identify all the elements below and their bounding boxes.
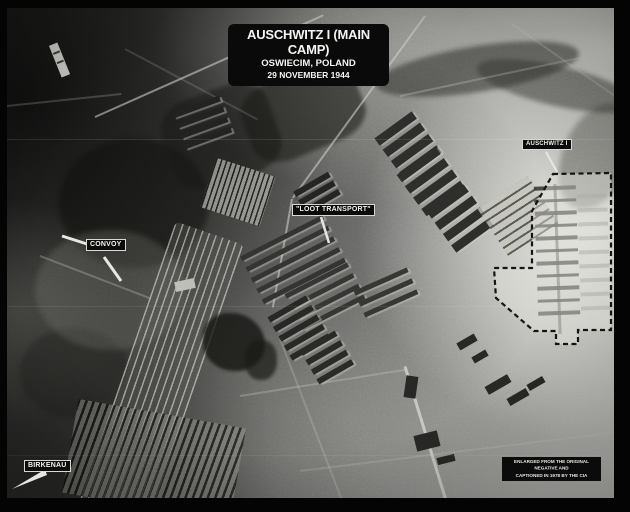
convoy-leader-line xyxy=(62,236,87,244)
auschwitz-leader-line xyxy=(546,152,557,172)
loot-transport-label: "LOOT TRANSPORT" xyxy=(292,204,375,216)
title-line3: 29 NOVEMBER 1944 xyxy=(230,70,387,81)
camp-dashed-boundary xyxy=(494,173,611,344)
cia-caption-box: ENLARGED FROM THE ORIGINAL NEGATIVE AND … xyxy=(502,457,601,481)
convoy-label: CONVOY xyxy=(86,239,126,251)
caption-line1: ENLARGED FROM THE ORIGINAL NEGATIVE AND xyxy=(507,460,596,472)
auschwitz-i-label: AUSCHWITZ I xyxy=(522,139,572,150)
photo-frame: AUSCHWITZ I (MAIN CAMP) OSWIECIM, POLAND… xyxy=(0,0,630,512)
title-line2: OSWIECIM, POLAND xyxy=(230,58,387,70)
convoy-leader-line xyxy=(104,257,121,281)
birkenau-arrow xyxy=(12,470,47,490)
title-box: AUSCHWITZ I (MAIN CAMP) OSWIECIM, POLAND… xyxy=(228,24,389,86)
loot-transport-leader-line xyxy=(321,217,329,243)
aerial-photograph: AUSCHWITZ I (MAIN CAMP) OSWIECIM, POLAND… xyxy=(7,8,614,498)
birkenau-label: BIRKENAU xyxy=(24,460,71,472)
caption-line2: CAPTIONED IN 1978 BY THE CIA xyxy=(507,473,596,479)
title-line1: AUSCHWITZ I (MAIN CAMP) xyxy=(230,28,387,58)
